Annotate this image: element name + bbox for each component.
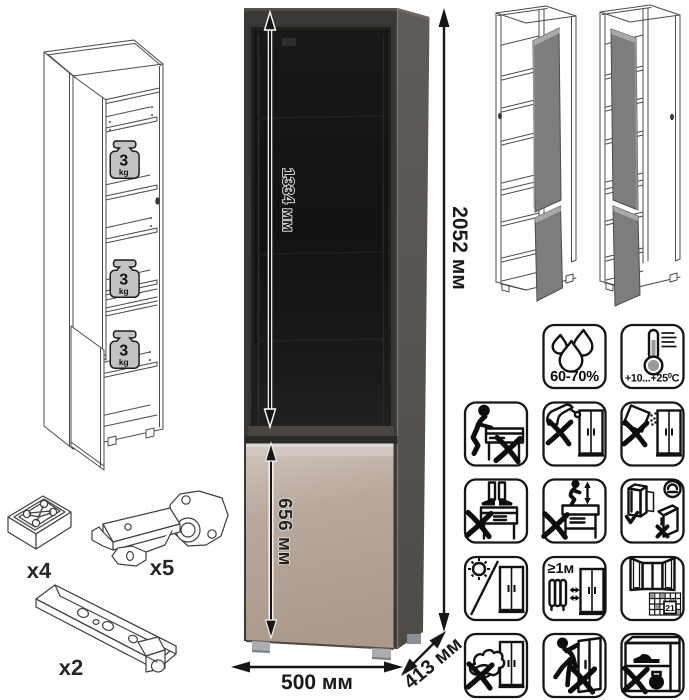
svg-text:60-70%: 60-70% <box>550 369 599 385</box>
svg-text:x4: x4 <box>27 558 52 583</box>
svg-text:x5: x5 <box>150 555 174 580</box>
svg-text:+10...+250С: +10...+250С <box>625 371 680 384</box>
svg-text:1334 мм: 1334 мм <box>279 168 296 232</box>
svg-text:21: 21 <box>665 603 675 613</box>
svg-text:2052 мм: 2052 мм <box>448 206 471 290</box>
svg-text:≥1м: ≥1м <box>548 561 575 577</box>
svg-text:500 мм: 500 мм <box>281 671 353 694</box>
svg-text:x2: x2 <box>59 655 83 680</box>
svg-text:656 мм: 656 мм <box>274 498 295 566</box>
